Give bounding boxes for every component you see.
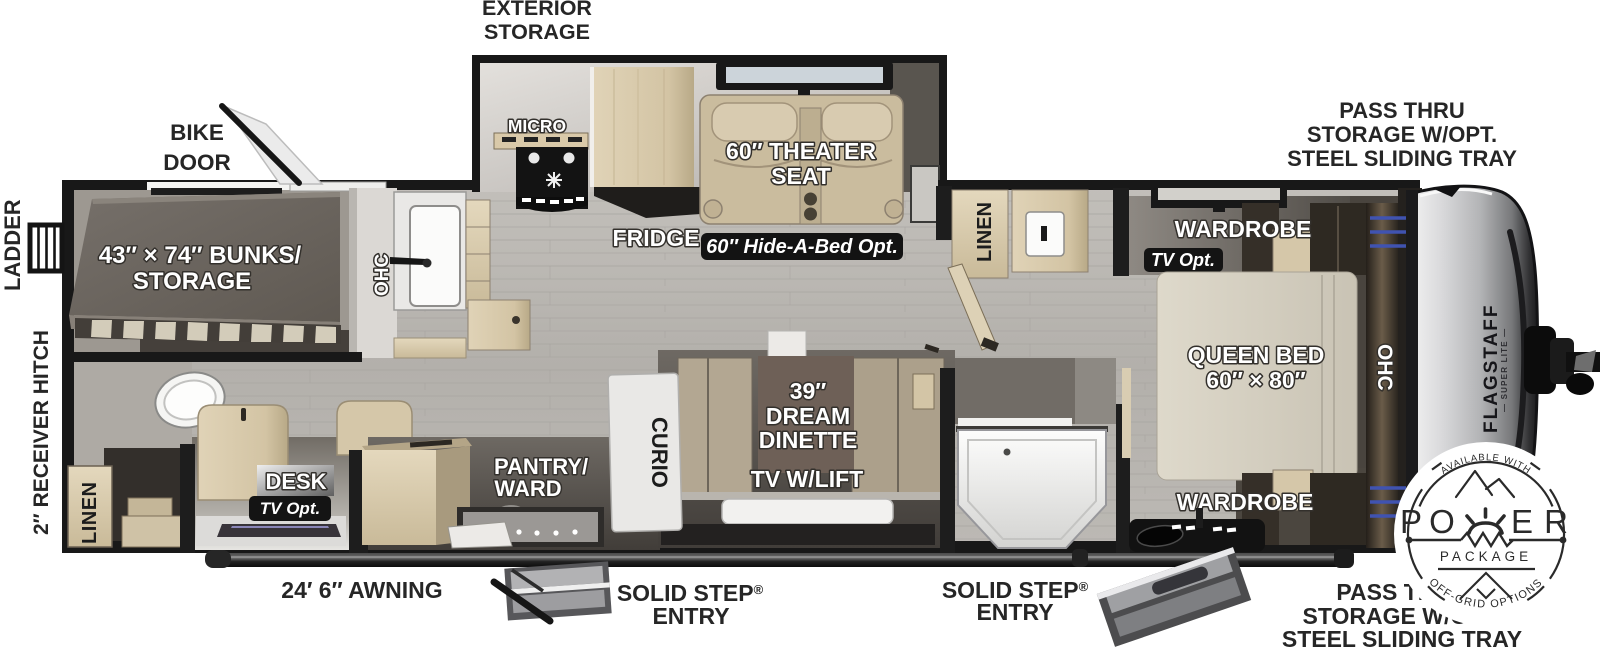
svg-text:OHC: OHC: [1373, 344, 1396, 391]
svg-text:EXTERIOR: EXTERIOR: [482, 0, 592, 20]
svg-text:24′ 6″ AWNING: 24′ 6″ AWNING: [281, 577, 442, 603]
svg-text:STORAGE W/OPT.: STORAGE W/OPT.: [1307, 122, 1497, 147]
svg-text:SEAT: SEAT: [771, 163, 831, 189]
svg-text:MICRO: MICRO: [508, 116, 566, 136]
svg-text:60″ THEATER: 60″ THEATER: [726, 138, 876, 164]
svg-text:BIKE: BIKE: [170, 120, 224, 145]
svg-text:DINETTE: DINETTE: [759, 427, 857, 453]
svg-text:QUEEN BED: QUEEN BED: [1188, 342, 1325, 368]
svg-text:P: P: [1400, 503, 1422, 540]
svg-text:STEEL SLIDING TRAY: STEEL SLIDING TRAY: [1282, 626, 1522, 647]
svg-text:OHC: OHC: [372, 254, 393, 297]
svg-text:ENTRY: ENTRY: [652, 603, 729, 629]
svg-text:FLAGSTAFF: FLAGSTAFF: [1481, 303, 1502, 433]
svg-text:WARD: WARD: [494, 476, 561, 501]
svg-text:TV Opt.: TV Opt.: [260, 499, 320, 518]
svg-text:STORAGE: STORAGE: [484, 20, 590, 44]
svg-text:PASS THRU: PASS THRU: [1339, 98, 1465, 123]
svg-text:CURIO: CURIO: [647, 417, 672, 488]
svg-text:LINEN: LINEN: [79, 482, 101, 545]
svg-text:TV W/LIFT: TV W/LIFT: [751, 466, 863, 492]
svg-text:WARDROBE: WARDROBE: [1175, 216, 1312, 242]
svg-text:39″: 39″: [790, 378, 827, 404]
svg-text:DOOR: DOOR: [163, 150, 231, 175]
svg-text:E: E: [1511, 503, 1533, 540]
svg-text:DREAM: DREAM: [766, 403, 850, 429]
svg-text:60″ × 80″: 60″ × 80″: [1206, 367, 1305, 393]
svg-text:2″ RECEIVER HITCH: 2″ RECEIVER HITCH: [30, 330, 53, 535]
svg-text:PACKAGE: PACKAGE: [1440, 549, 1532, 564]
svg-text:ENTRY: ENTRY: [976, 599, 1053, 625]
svg-text:STORAGE: STORAGE: [133, 268, 251, 295]
svg-text:TV Opt.: TV Opt.: [1151, 250, 1215, 270]
svg-text:— SUPER LITE —: — SUPER LITE —: [1500, 328, 1509, 412]
svg-text:DESK: DESK: [265, 469, 326, 494]
svg-text:60″ Hide-A-Bed Opt.: 60″ Hide-A-Bed Opt.: [706, 236, 898, 258]
svg-text:FRIDGE: FRIDGE: [613, 225, 700, 251]
svg-text:O: O: [1429, 503, 1455, 540]
svg-text:LINEN: LINEN: [974, 202, 996, 262]
svg-text:R: R: [1544, 503, 1568, 540]
svg-text:STEEL SLIDING TRAY: STEEL SLIDING TRAY: [1287, 146, 1517, 171]
svg-text:43″ × 74″ BUNKS/: 43″ × 74″ BUNKS/: [99, 242, 302, 269]
svg-text:LADDER: LADDER: [0, 199, 25, 291]
